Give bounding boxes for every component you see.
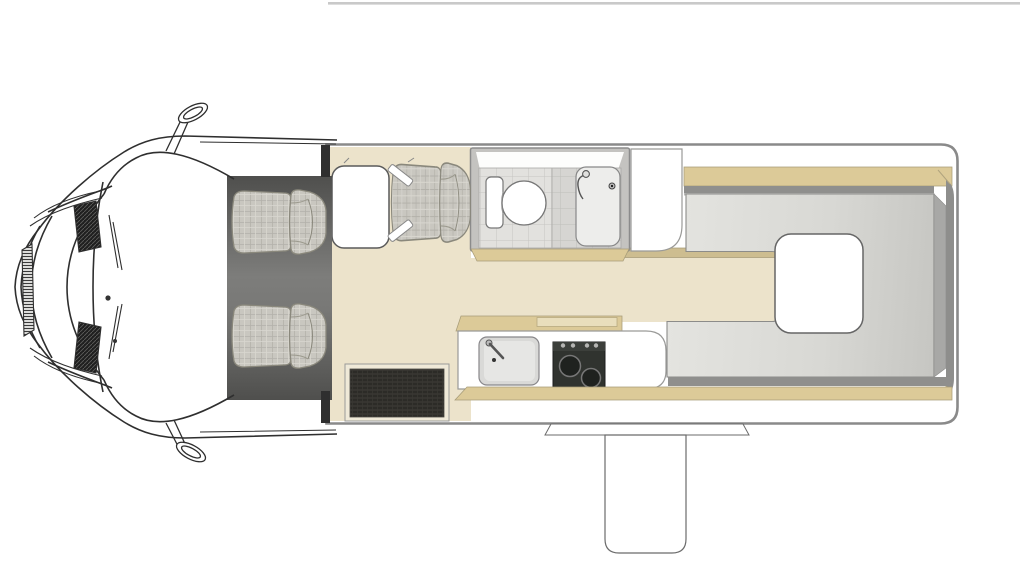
- shower-head: [583, 171, 590, 178]
- corridor-floor: [470, 258, 615, 316]
- awning-rail-line: [328, 2, 1020, 5]
- rear-walkway-floor: [605, 252, 779, 322]
- entry-mat: [345, 364, 449, 421]
- shower-drain-hole: [611, 185, 613, 187]
- side-mirror-bottom: [166, 420, 208, 466]
- floorplan-canvas: [0, 0, 1028, 566]
- wiper-pivot-1: [105, 295, 110, 300]
- rear-floor-right-bevel: [934, 194, 946, 377]
- wardrobe-unit: [631, 149, 682, 251]
- toilet: [486, 177, 546, 228]
- toilet-bowl: [502, 181, 546, 225]
- hob-knob-1: [561, 343, 565, 347]
- rear-bench-top-edge: [684, 186, 934, 193]
- hob: [553, 342, 605, 389]
- rear-table: [775, 234, 863, 333]
- driver-cab: [15, 99, 337, 465]
- sink: [479, 337, 539, 385]
- bathroom: [471, 148, 630, 261]
- rear-floor-bottom-edge: [668, 377, 950, 386]
- wipers: [109, 215, 122, 359]
- entry-step: [605, 435, 686, 553]
- bonnet-vent-bottom: [74, 322, 101, 373]
- rear-wall-bar: [946, 180, 954, 396]
- toilet-cistern: [486, 177, 503, 228]
- hob-burner-left: [560, 356, 581, 377]
- door-threshold: [545, 424, 749, 435]
- hob-knob-3: [585, 343, 589, 347]
- driver-seat: [232, 190, 326, 254]
- wiper-pivot-2: [113, 339, 117, 343]
- side-mirror-top: [166, 99, 210, 154]
- hob-knob-4: [594, 343, 598, 347]
- sink-drain: [492, 358, 496, 362]
- dinette-seat: [387, 163, 470, 242]
- passenger-seat: [232, 304, 326, 368]
- b-pillar-top: [321, 145, 330, 177]
- grille: [22, 244, 34, 336]
- floorplan-drawing: [0, 0, 1028, 566]
- worktop-flap: [537, 318, 617, 327]
- bathroom-cabinet-front: [471, 249, 629, 261]
- entry-door: [545, 424, 749, 553]
- kitchen-plinth-band: [455, 387, 952, 400]
- rear-bench-top: [684, 167, 952, 186]
- bonnet-vent-top: [74, 201, 101, 252]
- shower-tray: [576, 167, 620, 246]
- a-pillar-bottom: [104, 380, 234, 422]
- b-pillar-bottom: [321, 391, 330, 423]
- hob-burner-right: [582, 369, 601, 388]
- hob-knob-2: [571, 343, 575, 347]
- a-pillar-top: [104, 152, 234, 194]
- shower: [576, 167, 620, 246]
- dinette-table: [332, 166, 389, 248]
